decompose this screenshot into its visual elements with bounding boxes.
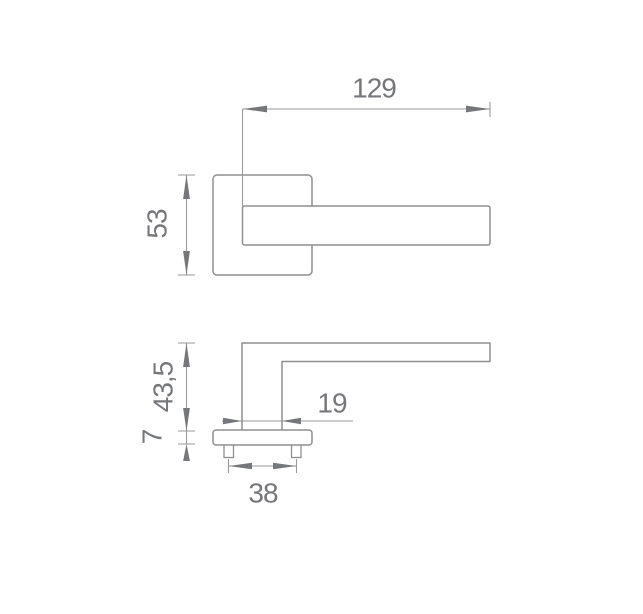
arrowhead-right-icon (466, 106, 490, 113)
arrowhead-down-icon (183, 408, 190, 431)
arrowhead-right-icon (273, 463, 297, 470)
arrowhead-down-icon (183, 251, 190, 275)
drawing-canvas: 129 53 43,5 (0, 0, 643, 614)
arrowhead-up-icon (183, 175, 190, 199)
rosette-side-profile (213, 430, 312, 445)
technical-drawing-svg: 129 53 43,5 (0, 0, 643, 614)
dimension-label-handle-length: 129 (352, 73, 396, 104)
lever-bar-plan (243, 206, 491, 245)
dimension-label-rosette-width: 53 (142, 209, 173, 239)
dimension-label-grip-depth: 19 (317, 388, 347, 419)
dimension-screw-spacing (229, 459, 297, 473)
arrowhead-left-icon (243, 106, 267, 113)
dimension-label-handle-height: 43,5 (148, 361, 179, 412)
dimension-label-screw-spacing: 38 (248, 478, 278, 509)
arrowhead-right-outside-icon (223, 418, 242, 425)
handle-profile-side (242, 343, 490, 430)
top-view: 129 53 (142, 73, 491, 276)
side-view: 43,5 7 19 38 (137, 343, 491, 509)
dimension-handle-height (178, 343, 195, 431)
arrowhead-left-icon (229, 463, 253, 470)
screw-peg-right (292, 444, 302, 458)
arrowhead-up-outside-icon (183, 444, 190, 461)
arrowhead-left-outside-icon (282, 418, 301, 425)
dimension-rosette-width (178, 175, 195, 275)
dimension-rosette-thickness (178, 431, 195, 461)
screw-peg-left (224, 444, 234, 458)
dimension-label-rosette-thickness: 7 (137, 429, 168, 444)
arrowhead-up-icon (183, 343, 190, 367)
